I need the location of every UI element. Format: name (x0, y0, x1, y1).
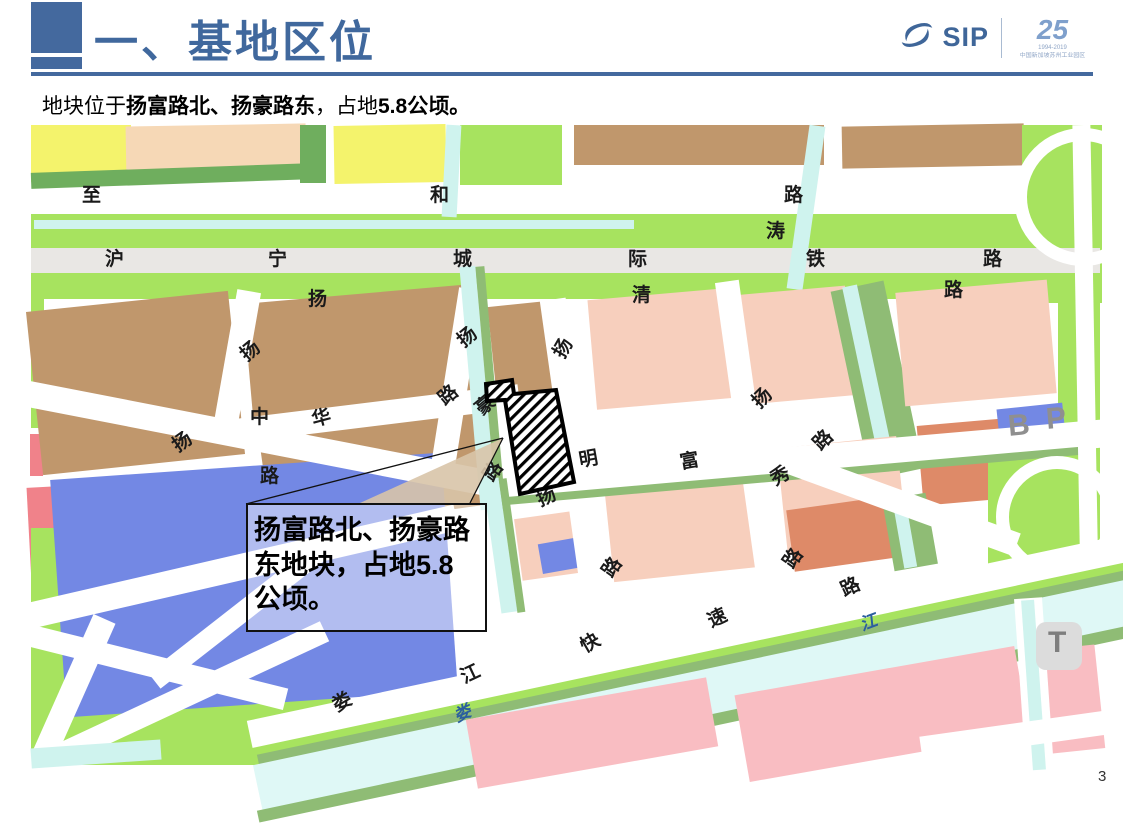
road-label: 沪 (105, 250, 124, 269)
map-block (574, 125, 824, 165)
road-label: 铁 (806, 250, 825, 269)
map-block (34, 220, 634, 229)
road-label: 城 (453, 250, 472, 269)
road-label: 涛 (766, 222, 785, 241)
map-block (334, 124, 447, 184)
map-block (895, 280, 1056, 407)
map-block (26, 291, 245, 475)
road-label: 明 (577, 448, 599, 470)
road-label: 路 (944, 281, 963, 300)
map-block (587, 288, 734, 410)
map-block (842, 123, 1025, 168)
road-label: 扬 (308, 290, 327, 309)
parcel-callout: 扬富路北、扬豪路东地块，占地5.8公顷。 (246, 503, 487, 632)
road-label: 富 (678, 450, 700, 472)
railway (31, 248, 1100, 273)
road-label: 和 (430, 186, 449, 205)
road-label: 路 (260, 467, 279, 486)
poi-transit: T (1048, 628, 1066, 658)
map-block (460, 125, 562, 185)
poi-b: B (1007, 410, 1031, 442)
map-block (300, 125, 326, 183)
road-label: 清 (632, 286, 651, 305)
location-map: 至和路涛沪宁城际铁路扬清路扬扬扬路豪中华扬扬路路明富路秀扬路路娄江快速路娄江BP… (0, 0, 1123, 794)
road-label: 至 (82, 186, 101, 205)
road-label: 际 (628, 250, 647, 269)
road-label: 宁 (268, 250, 287, 269)
road-label: 路 (784, 186, 803, 205)
poi-parking: P (1045, 403, 1068, 435)
page-number: 3 (1098, 768, 1106, 785)
road-label: 路 (983, 250, 1002, 269)
road-label: 中 (250, 408, 269, 427)
